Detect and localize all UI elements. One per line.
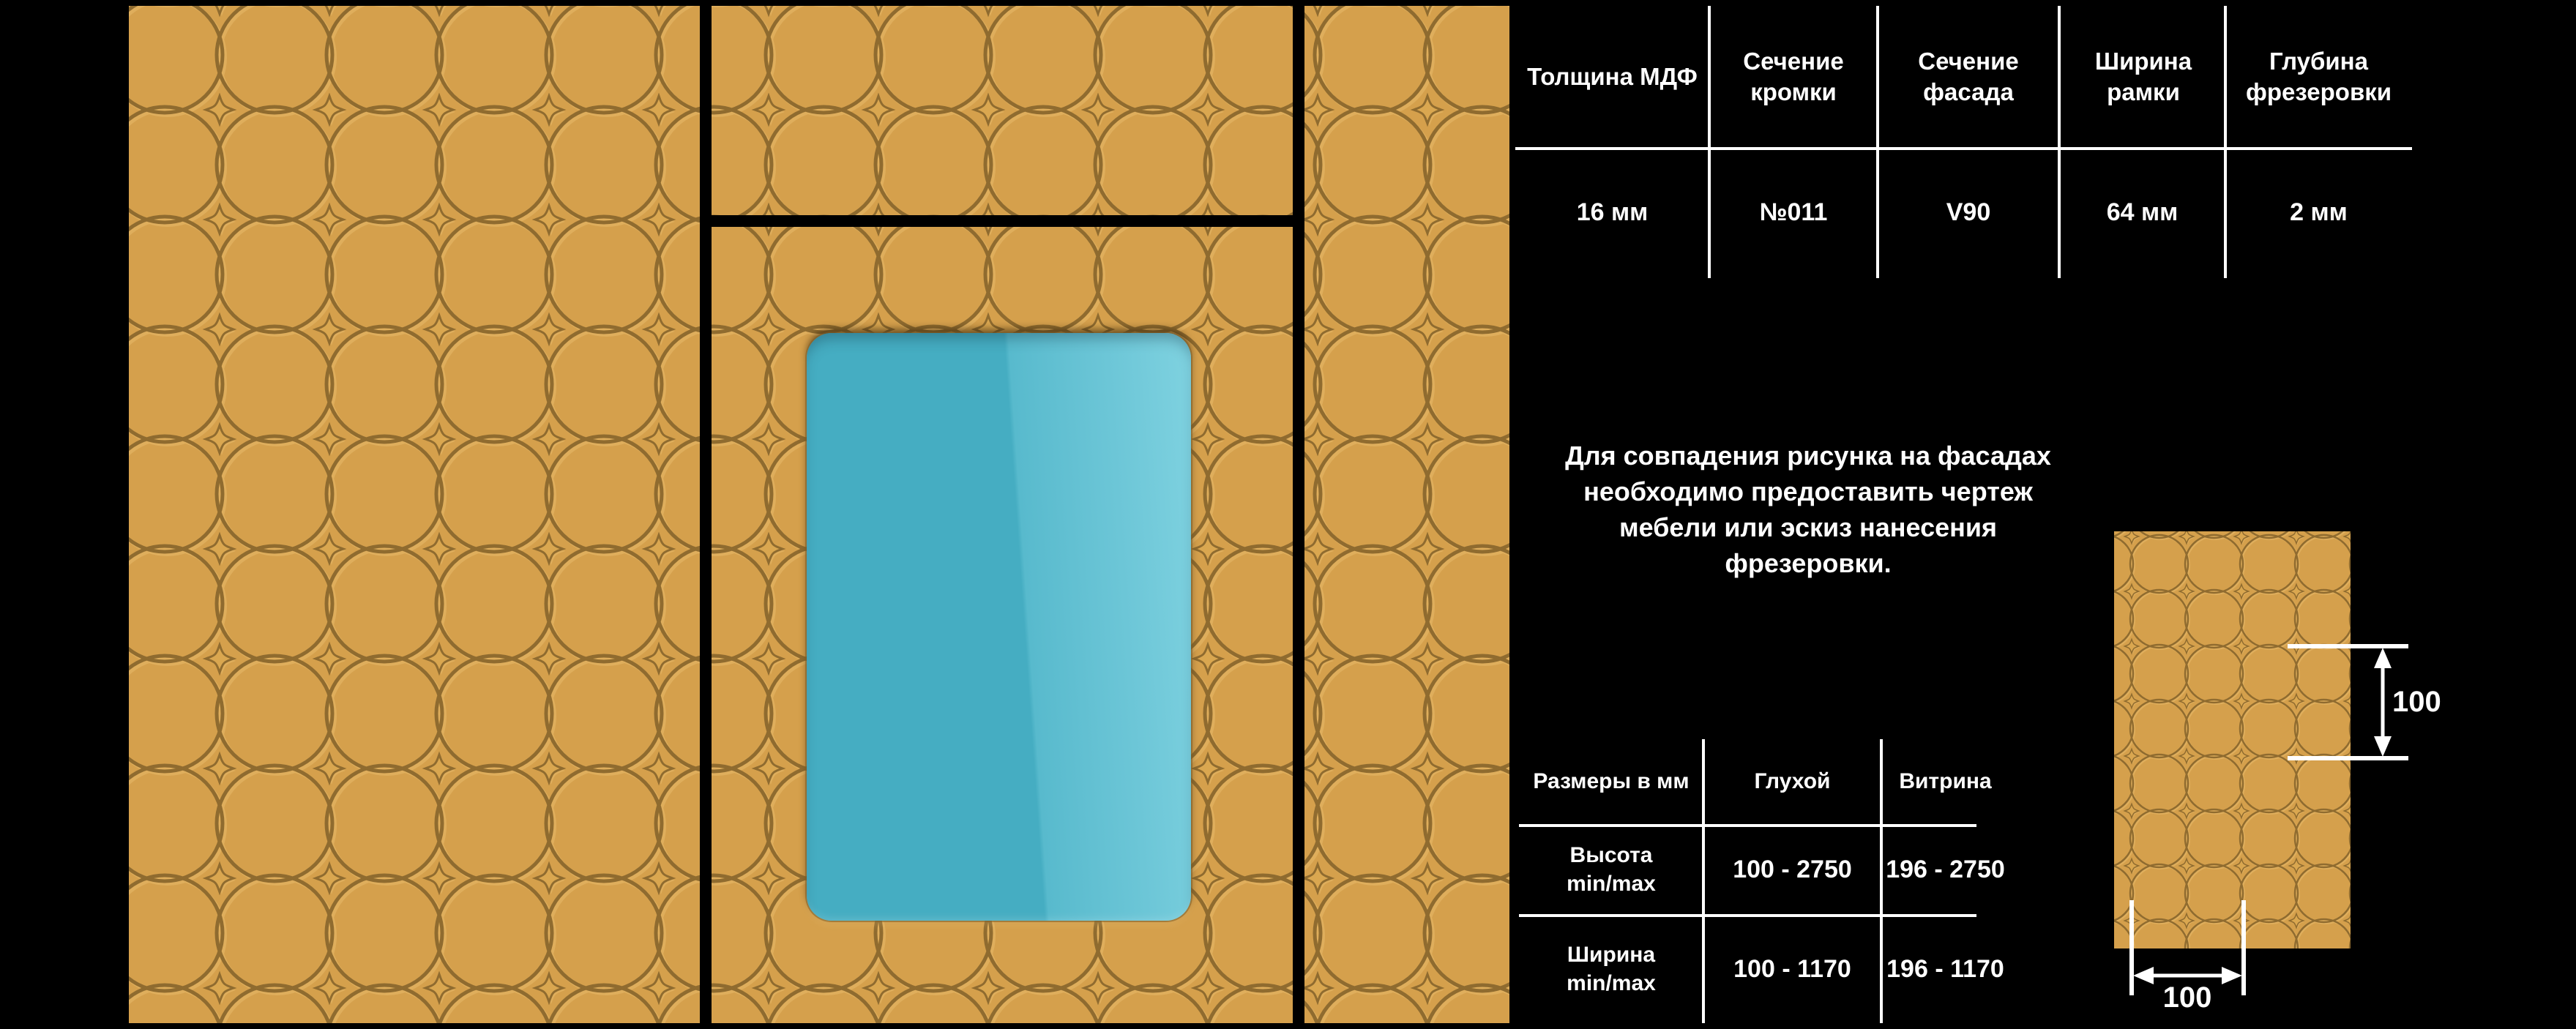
size-table-divider (1519, 824, 1976, 827)
arrow-right-icon (2222, 967, 2242, 984)
size-header-glukhoy: Глухой (1703, 739, 1881, 824)
size-row-height-title: Высота (1570, 842, 1653, 869)
pattern-matching-note: Для совпадения рисунка на фасадах необхо… (1537, 438, 2079, 581)
size-height-vitrina: 196 - 2750 (1881, 826, 2009, 914)
arrow-down-icon (2374, 736, 2392, 757)
spec-header-edge-section: Сечение кромки (1717, 6, 1870, 147)
vertical-dimension-label: 100 (2392, 686, 2441, 718)
spec-table-divider (1515, 147, 2412, 150)
spec-value-facade-section: V90 (1878, 149, 2059, 277)
size-header-dimensions: Размеры в мм (1519, 739, 1703, 824)
size-table-divider (1519, 914, 1976, 917)
note-line: фрезеровки. (1537, 545, 2079, 581)
spec-table-divider (2058, 6, 2061, 278)
size-width-glukhoy: 100 - 1170 (1703, 916, 1881, 1023)
spec-header-mdf-thickness: Толщина МДФ (1515, 6, 1709, 147)
spec-header-facade-section: Сечение фасада (1885, 6, 2052, 147)
facade-panel-left (129, 6, 700, 1023)
size-row-height-minmax: min/max (1567, 870, 1656, 898)
spec-table-divider (1708, 6, 1711, 278)
note-line: необходимо предоставить чертеж (1537, 474, 2079, 509)
size-table-divider (1702, 739, 1705, 1023)
size-header-vitrina: Витрина (1881, 739, 2009, 824)
spec-value-milling-depth: 2 мм (2225, 149, 2412, 277)
spec-value-frame-width: 64 мм (2059, 149, 2225, 277)
spec-header-frame-width: Ширина рамки (2077, 6, 2209, 147)
size-row-width-label: Ширина min/max (1519, 916, 1703, 1023)
size-height-glukhoy: 100 - 2750 (1703, 826, 1881, 914)
facade-panel-right-narrow (1304, 6, 1509, 1023)
note-line: Для совпадения рисунка на фасадах (1537, 438, 2079, 474)
facade-panel-drawer-top (712, 6, 1293, 215)
pattern-sample-panel (2114, 531, 2351, 948)
spec-header-milling-depth: Глубина фрезеровки (2229, 6, 2408, 147)
size-row-width-minmax: min/max (1567, 970, 1656, 998)
horizontal-dimension-label: 100 (2163, 981, 2212, 1014)
note-line: мебели или эскиз нанесения (1537, 509, 2079, 545)
spec-table-divider (2224, 6, 2227, 278)
vitrina-glass-window (807, 333, 1191, 921)
size-row-height-label: Высота min/max (1519, 826, 1703, 914)
spec-table-divider (1876, 6, 1879, 278)
arrow-up-icon (2374, 648, 2392, 668)
spec-value-edge-section: №011 (1709, 149, 1878, 277)
size-table-divider (1880, 739, 1883, 1023)
size-row-width-title: Ширина (1567, 941, 1655, 969)
spec-value-mdf-thickness: 16 мм (1515, 149, 1709, 277)
size-width-vitrina: 196 - 1170 (1881, 916, 2009, 1023)
arrow-left-icon (2133, 967, 2154, 984)
